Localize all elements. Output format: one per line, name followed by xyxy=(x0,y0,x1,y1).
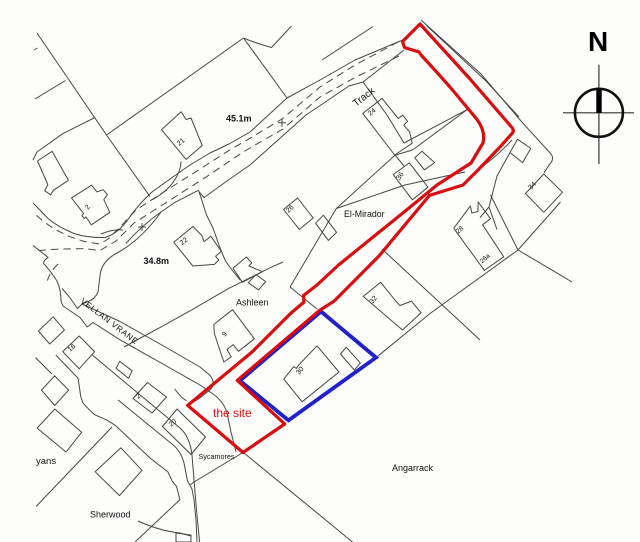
svg-text:El-Mirador: El-Mirador xyxy=(344,209,385,219)
svg-text:yans: yans xyxy=(36,456,56,467)
svg-text:N: N xyxy=(588,26,608,57)
svg-text:Sherwood: Sherwood xyxy=(90,510,131,520)
svg-text:45.1m: 45.1m xyxy=(226,114,252,124)
svg-text:Sycamores: Sycamores xyxy=(199,452,235,461)
svg-text:Ashleen: Ashleen xyxy=(236,298,269,308)
svg-text:Angarrack: Angarrack xyxy=(392,463,434,473)
svg-text:the site: the site xyxy=(213,406,252,420)
svg-text:34.8m: 34.8m xyxy=(144,256,170,266)
